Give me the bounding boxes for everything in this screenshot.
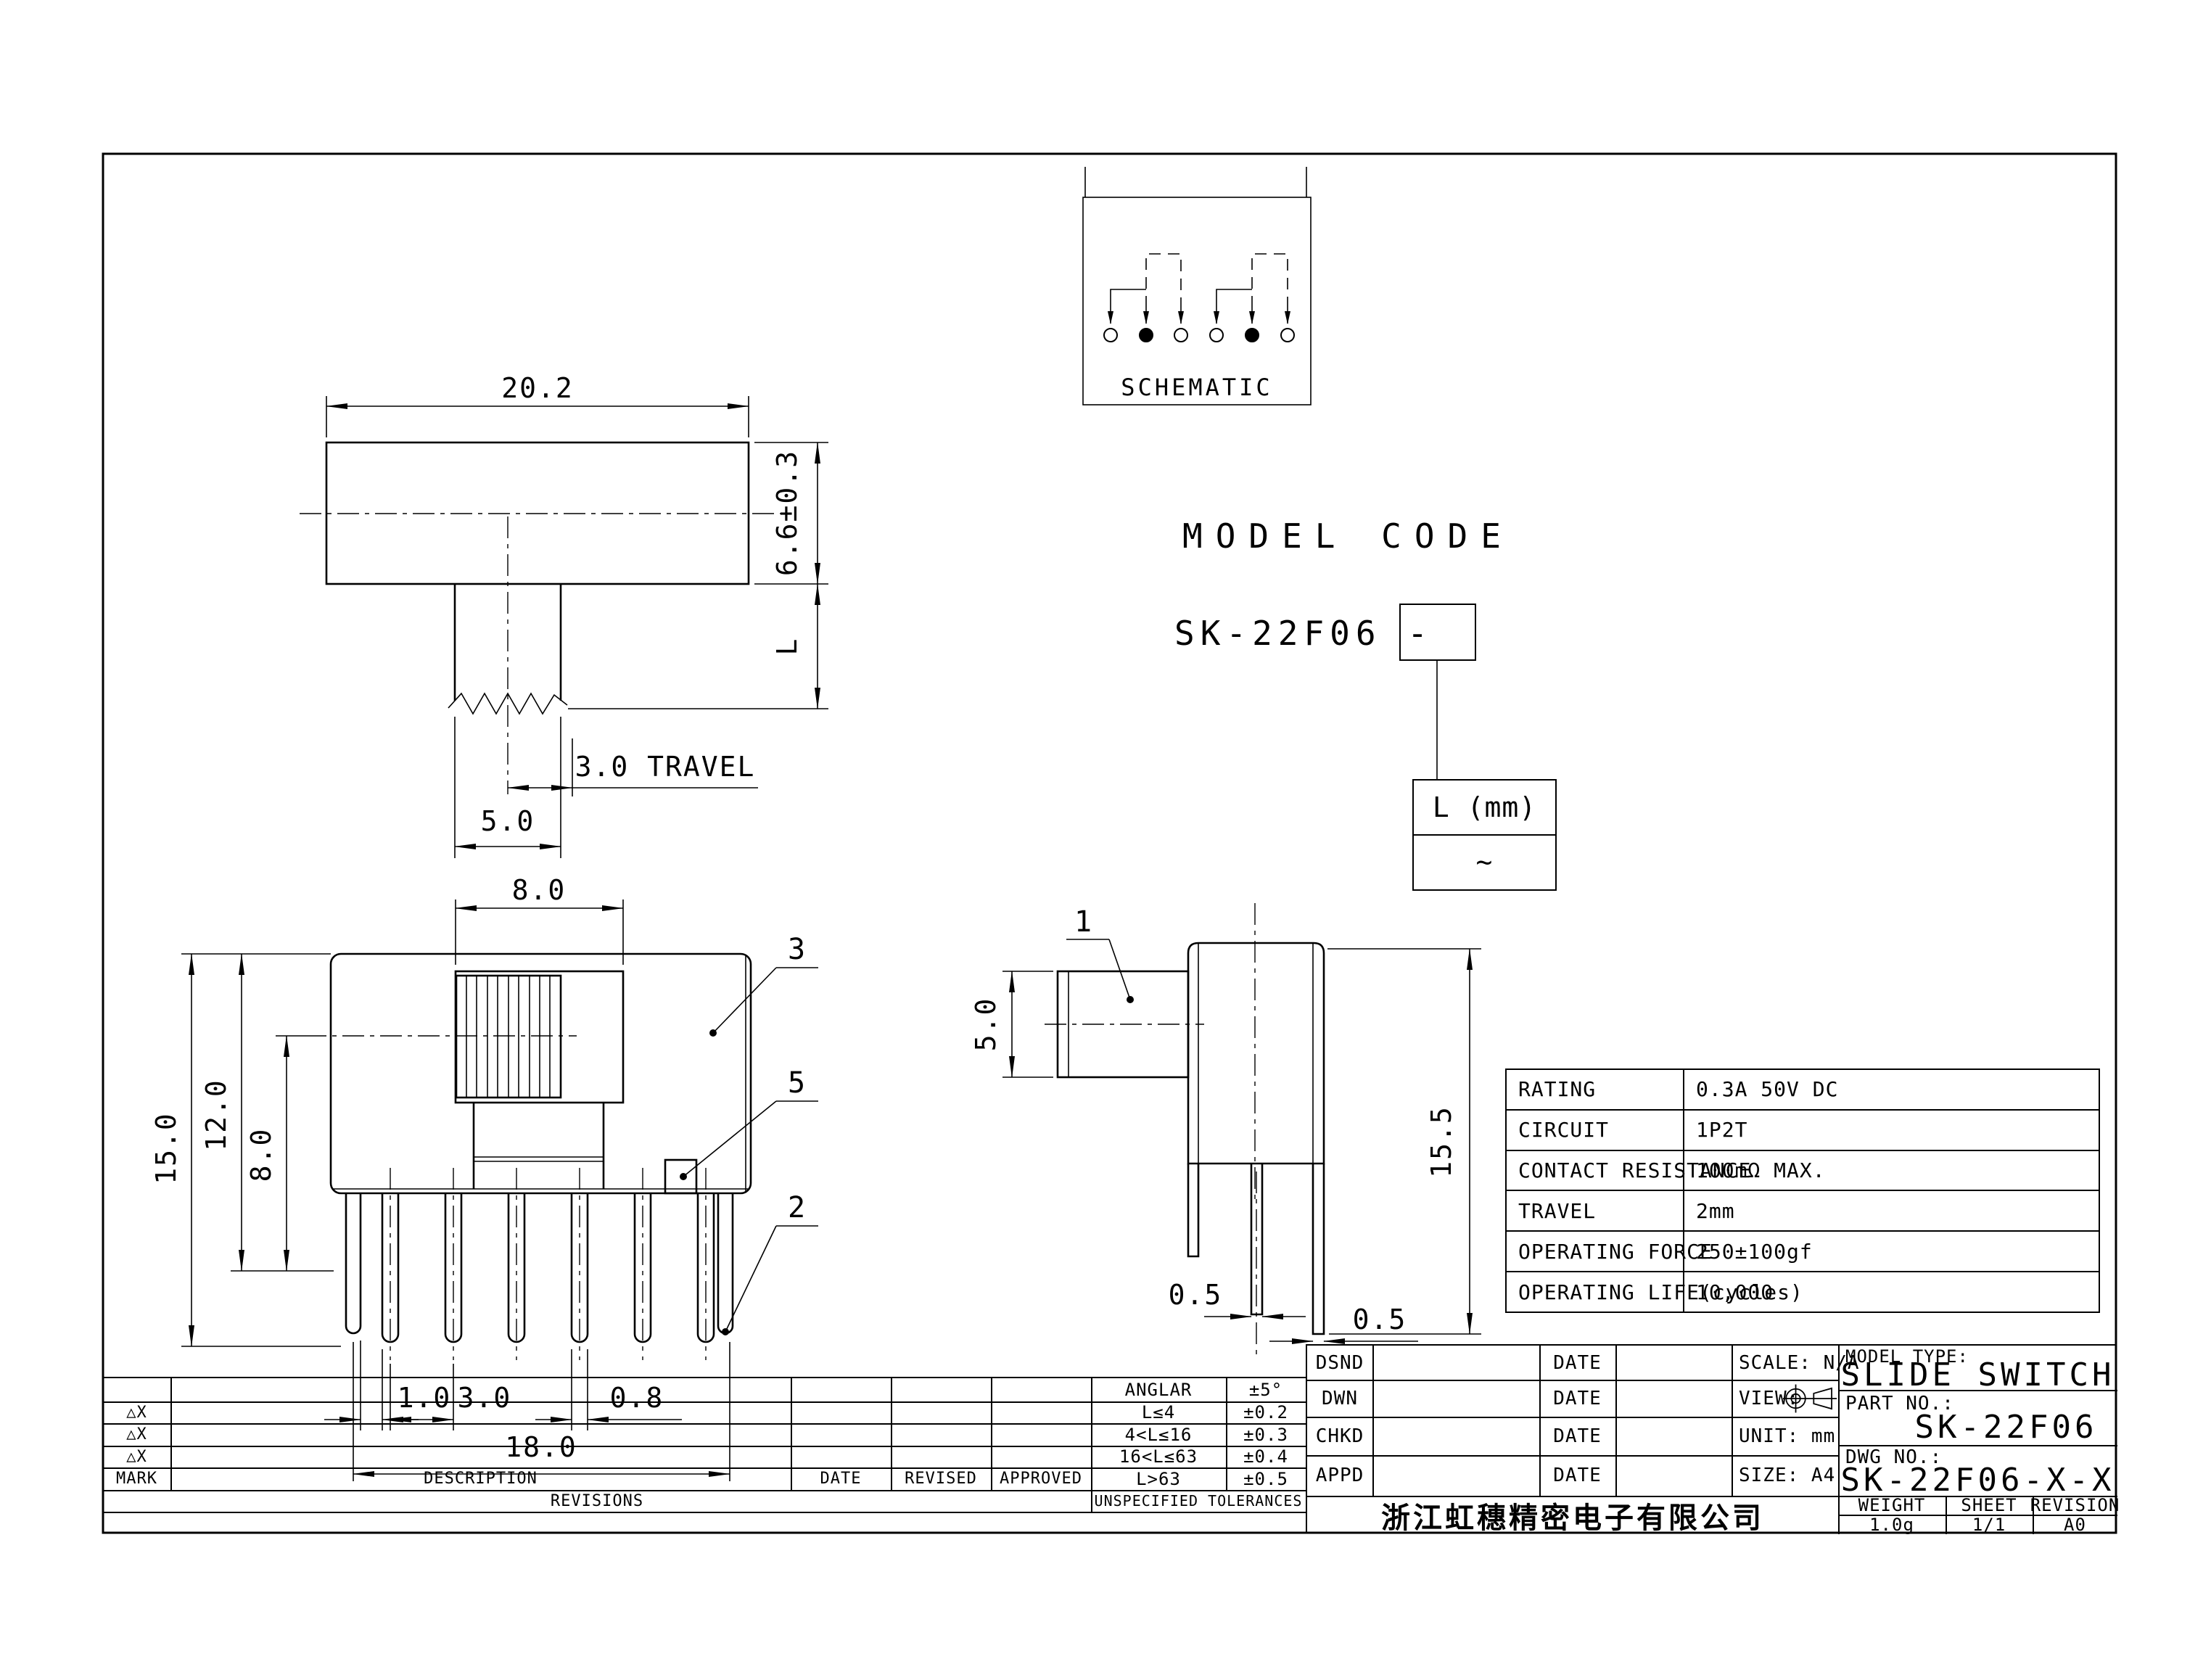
weight-value: 1.0g bbox=[1838, 1515, 1946, 1534]
revisions-footer: REVISIONS bbox=[103, 1490, 1091, 1512]
part-no-value: SK-22F06 bbox=[1895, 1411, 2117, 1443]
dim-12-0: 12.0 bbox=[200, 1079, 232, 1151]
model-code-text: SK-22F06 - bbox=[1174, 614, 1433, 653]
dim-20-2: 20.2 bbox=[501, 372, 574, 404]
callout-1: 1 bbox=[1074, 905, 1093, 939]
size-label: SIZE: A4 bbox=[1739, 1455, 1838, 1496]
dim-15-5: 15.5 bbox=[1425, 1105, 1457, 1178]
tolerance-value: ±0.4 bbox=[1226, 1446, 1306, 1467]
dim-8-0-left: 8.0 bbox=[245, 1128, 277, 1182]
weight-label: WEIGHT bbox=[1838, 1496, 1946, 1515]
tolerance-value: ±0.2 bbox=[1226, 1401, 1306, 1423]
dim-0-5-a: 0.5 bbox=[1169, 1279, 1223, 1311]
revision-mark: △X bbox=[103, 1446, 170, 1467]
model-code-param-table: L (mm) ~ bbox=[1412, 779, 1557, 891]
spec-value: 250±100gf bbox=[1684, 1232, 2099, 1271]
sign-role-dwn: DWN bbox=[1307, 1380, 1372, 1417]
tolerance-name: 4<L≤16 bbox=[1091, 1423, 1226, 1446]
sign-role-dsnd: DSND bbox=[1307, 1346, 1372, 1380]
spec-value: 100mΩ MAX. bbox=[1684, 1151, 2099, 1190]
spec-label: CIRCUIT bbox=[1507, 1111, 1684, 1150]
tolerance-value: ±0.3 bbox=[1226, 1423, 1306, 1446]
dim-5-0: 5.0 bbox=[481, 805, 535, 837]
sign-date-appd: DATE bbox=[1539, 1455, 1615, 1496]
spec-row-operating-life: OPERATING LIFE(cycles) 10,000 bbox=[1507, 1272, 2099, 1312]
callout-3: 3 bbox=[788, 933, 807, 966]
revision-header-approved: APPROVED bbox=[991, 1467, 1091, 1490]
dim-0-5-b: 0.5 bbox=[1353, 1304, 1407, 1335]
param-value: ~ bbox=[1414, 836, 1555, 888]
dim-L: L bbox=[771, 638, 803, 656]
scale-label: SCALE: N/A bbox=[1739, 1346, 1838, 1380]
dim-6-6: 6.6±0.3 bbox=[771, 450, 803, 576]
revision-label: REVISION bbox=[2033, 1496, 2117, 1515]
spec-label: RATING bbox=[1507, 1070, 1684, 1109]
sheet-value: 1/1 bbox=[1946, 1515, 2033, 1534]
revision-mark: △X bbox=[103, 1423, 170, 1446]
model-code-suffix-box bbox=[1399, 604, 1476, 661]
revision-value: A0 bbox=[2033, 1515, 2117, 1534]
model-code-title: MODEL CODE bbox=[1182, 516, 1514, 556]
spec-value: 10,000 bbox=[1684, 1272, 2099, 1312]
revision-header-description: DESCRIPTION bbox=[170, 1467, 791, 1490]
unit-label: UNIT: mm bbox=[1739, 1417, 1838, 1455]
spec-row-operating-force: OPERATING FORCE 250±100gf bbox=[1507, 1232, 2099, 1272]
revision-header-date: DATE bbox=[791, 1467, 891, 1490]
dim-15-0: 15.0 bbox=[150, 1112, 182, 1185]
spec-row-rating: RATING 0.3A 50V DC bbox=[1507, 1070, 2099, 1111]
spec-label: OPERATING LIFE(cycles) bbox=[1507, 1272, 1684, 1312]
spec-value: 0.3A 50V DC bbox=[1684, 1070, 2099, 1109]
dim-5-0-side: 5.0 bbox=[970, 997, 1002, 1052]
sign-date-dwn: DATE bbox=[1539, 1380, 1615, 1417]
dim-travel: 3.0 TRAVEL bbox=[575, 751, 756, 783]
model-type-value: SLIDE SWITCH bbox=[1838, 1360, 2117, 1389]
tolerance-value: ±5° bbox=[1226, 1378, 1306, 1401]
spec-row-travel: TRAVEL 2mm bbox=[1507, 1191, 2099, 1232]
drawing-sheet: 20.2 6.6±0.3 L 3.0 TRAVEL 5.0 bbox=[0, 0, 2211, 1680]
dwg-no-value: SK-22F06-X-X bbox=[1838, 1464, 2117, 1496]
revision-tolerance-block: △X △X △X MARK DESCRIPTION DATE REVISED A… bbox=[103, 1377, 1306, 1533]
sign-role-chkd: CHKD bbox=[1307, 1417, 1372, 1455]
side-view: 1 5.0 0.5 0.5 15.5 bbox=[970, 903, 1481, 1355]
sheet-label: SHEET bbox=[1946, 1496, 2033, 1515]
sheet-border bbox=[103, 154, 2116, 1533]
spec-label: TRAVEL bbox=[1507, 1191, 1684, 1230]
sign-role-appd: APPD bbox=[1307, 1455, 1372, 1496]
spec-table: RATING 0.3A 50V DC CIRCUIT 1P2T CONTACT … bbox=[1505, 1068, 2100, 1313]
tolerance-name: ANGLAR bbox=[1091, 1378, 1226, 1401]
spec-value: 2mm bbox=[1684, 1191, 2099, 1230]
param-header: L (mm) bbox=[1414, 781, 1555, 836]
schematic: SCHEMATIC bbox=[1083, 167, 1311, 405]
top-view: 20.2 6.6±0.3 L 3.0 TRAVEL 5.0 bbox=[300, 372, 828, 858]
spec-label: CONTACT RESISTANCE bbox=[1507, 1151, 1684, 1190]
tolerance-value: ±0.5 bbox=[1226, 1467, 1306, 1490]
sign-date-chkd: DATE bbox=[1539, 1417, 1615, 1455]
dim-8-0-top: 8.0 bbox=[512, 874, 567, 906]
spec-row-circuit: CIRCUIT 1P2T bbox=[1507, 1111, 2099, 1151]
schematic-label: SCHEMATIC bbox=[1121, 374, 1272, 401]
spec-row-contact-resistance: CONTACT RESISTANCE 100mΩ MAX. bbox=[1507, 1151, 2099, 1192]
sign-date-dsnd: DATE bbox=[1539, 1346, 1615, 1380]
tolerance-footer: UNSPECIFIED TOLERANCES bbox=[1091, 1490, 1306, 1512]
company-name: 浙江虹穗精密电子有限公司 bbox=[1307, 1496, 1838, 1534]
revision-header-revised: REVISED bbox=[891, 1467, 991, 1490]
tolerance-name: L>63 bbox=[1091, 1467, 1226, 1490]
tolerance-name: L≤4 bbox=[1091, 1401, 1226, 1423]
callout-5: 5 bbox=[788, 1066, 807, 1100]
tolerance-name: 16<L≤63 bbox=[1091, 1446, 1226, 1467]
spec-label: OPERATING FORCE bbox=[1507, 1232, 1684, 1271]
callout-2: 2 bbox=[788, 1191, 807, 1224]
spec-value: 1P2T bbox=[1684, 1111, 2099, 1150]
revision-header-mark: MARK bbox=[103, 1467, 170, 1490]
first-angle-projection-icon bbox=[1782, 1382, 1837, 1415]
revision-mark: △X bbox=[103, 1401, 170, 1423]
title-block: DSND DATE DWN DATE CHKD DATE APPD DATE S… bbox=[1306, 1344, 2116, 1533]
